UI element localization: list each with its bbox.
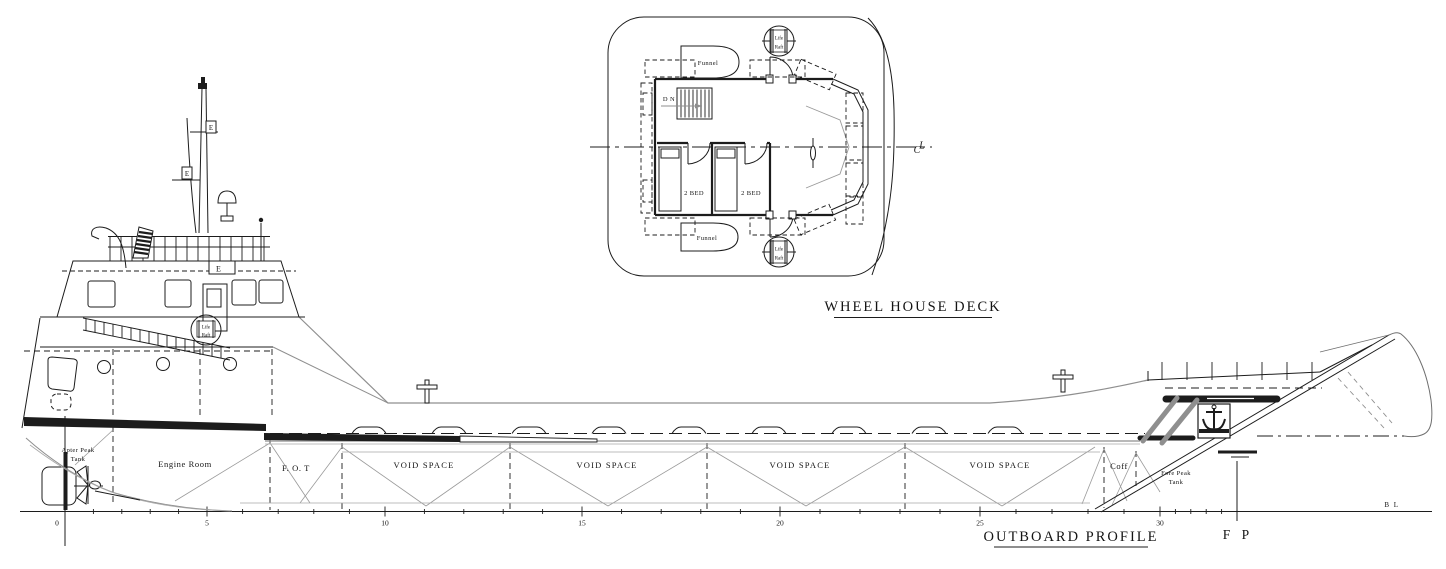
mast-flag-upper: E [206,121,216,133]
station-25: 25 [976,519,984,528]
life-raft-side: Life Raft [191,315,221,345]
funnel-bottom-label: Funnel [697,235,717,242]
portholes [98,358,237,374]
station-30: 30 [1156,519,1164,528]
life-raft-side-label-1: Life [202,326,211,331]
cabin-1-label: 2 BED [684,190,704,197]
void-space-4-label: VOID SPACE [969,460,1030,470]
whip-antenna [259,218,263,261]
centerline-symbol: C L [914,141,926,157]
door-bottom [766,211,796,237]
rudder-propeller [42,416,103,546]
cabin-2: 2 BED [715,143,767,211]
profile-title: OUTBOARD PROFILE [984,529,1159,545]
bow-ramp [1095,333,1432,521]
bridge-panel: E [209,261,235,274]
funnel-top-label: Funnel [698,60,718,67]
house-frame-lines [113,349,272,417]
ship-general-arrangement-drawing: Life Raft E [0,0,1446,569]
engine-room-label: Engine Room [158,459,212,469]
station-15: 15 [578,519,586,528]
life-raft-top-label-1: Life [775,37,784,42]
mast: E E [172,77,263,261]
wheelhouse-windows [88,280,283,307]
plan-title: WHEEL HOUSE DECK [824,299,1001,315]
station-10: 10 [381,519,389,528]
cross-bollard-aft [417,380,437,403]
life-raft-top-label-2: Raft [775,46,784,51]
baseline [20,507,1432,517]
void-space-1-label: VOID SPACE [393,460,454,470]
funnel-bottom: Funnel [681,223,738,251]
coff-label: Coff [1110,461,1128,471]
anchor-icon [1198,404,1230,438]
station-0: 0 [55,519,59,528]
station-5: 5 [205,519,209,528]
life-raft-bottom: Life Raft [762,237,796,267]
mast-flag-upper-label: E [209,124,213,132]
station-numbers: 0 5 10 15 20 25 30 [55,519,1164,528]
radar-dome [218,191,236,221]
wheelhouse-top-railing [108,237,270,262]
station-20: 20 [776,519,784,528]
wheel-house-deck-plan: C L Life Raft Life Raft [590,17,1002,318]
void-space-2-label: VOID SPACE [576,460,637,470]
stairs: D N [661,88,712,119]
void-space-3-label: VOID SPACE [769,460,830,470]
forecastle-railing [1162,362,1312,380]
fore-peak-tank-label-2: Tank [1169,479,1184,486]
aft-peak-tank-label-1: Apter Peak [61,447,94,454]
transom-chock [48,357,77,410]
exhaust-funnel [133,227,153,258]
fp-label: F P [1223,527,1253,542]
cabin-1: 2 BED [659,143,710,211]
helm [811,138,816,168]
life-raft-bottom-label-2: Raft [775,257,784,262]
cabin-2-label: 2 BED [741,190,761,197]
door-top [766,57,796,83]
aft-peak-tank-label-2: Tank [71,456,86,463]
fore-perpendicular [1218,452,1257,521]
centerline-symbol-l: L [918,141,925,152]
superstructure: Life Raft E [24,227,305,417]
life-raft-bottom-label-1: Life [775,248,784,253]
mast-flag-lower-label: E [185,170,189,178]
drawing-svg: Life Raft E [0,0,1446,569]
baseline-label: B L [1384,501,1399,509]
fot-label: F. O. T [282,463,310,473]
waterline-bands [24,417,597,442]
fore-peak-tank-label-1: Fore Peak [1161,470,1191,477]
deck-cleats [352,427,1022,434]
bridge-panel-label: E [216,265,222,274]
life-raft-top: Life Raft [762,26,796,56]
cross-bollard-fwd [1053,370,1073,392]
life-raft-side-label-2: Raft [202,334,211,339]
stairs-dn-label: D N [663,96,675,103]
forecastle [1148,345,1372,388]
funnel-top: Funnel [681,46,739,78]
mast-flag-lower: E [182,167,192,179]
deck-lines [265,317,1148,444]
